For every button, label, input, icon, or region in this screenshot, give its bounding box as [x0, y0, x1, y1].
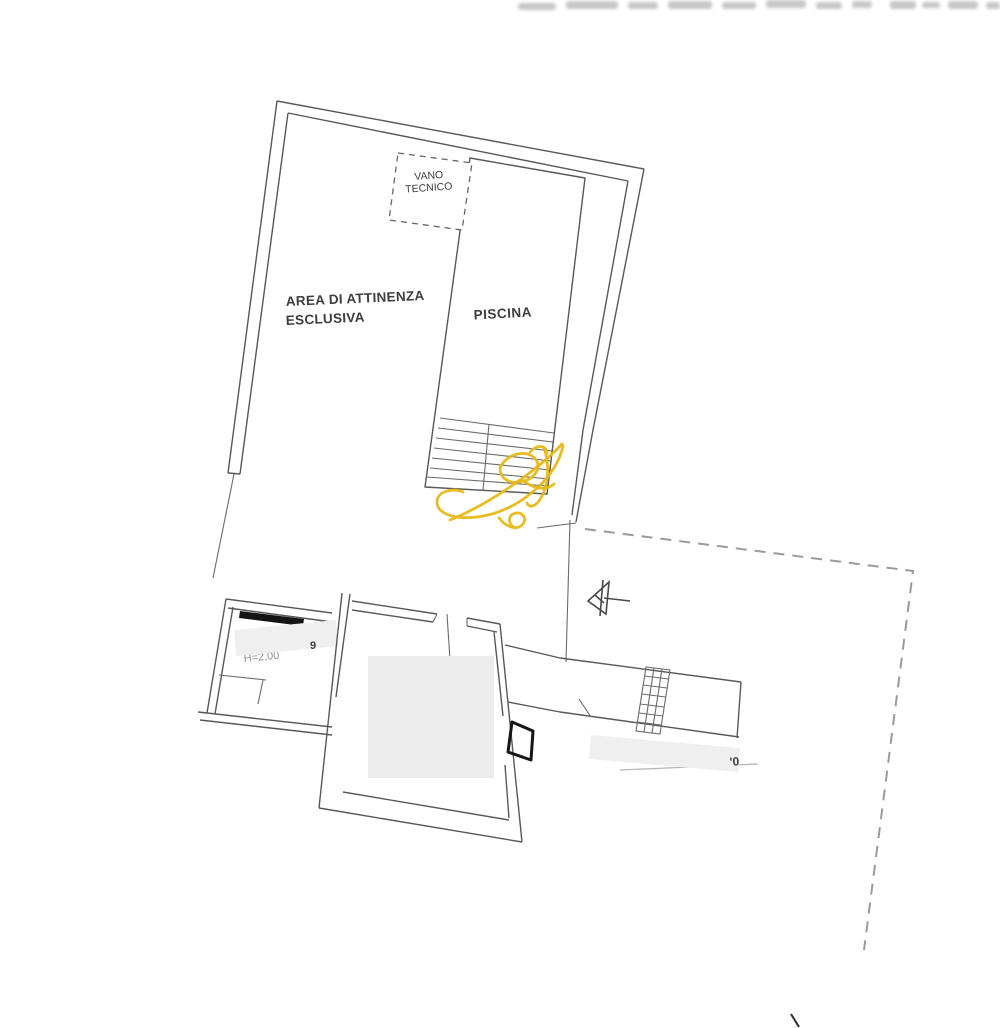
blroom-left-outer — [207, 599, 226, 713]
watermark-stroke-bottom-loop — [499, 513, 525, 528]
corridor-wing: '0 — [505, 645, 758, 772]
blroom-top-outer — [226, 599, 332, 613]
blroom-bottom-outer — [198, 712, 332, 727]
floor-plan-page: PISCINA VANO TECNICO AREA DI ATTINENZA E… — [0, 0, 1000, 1028]
croom-right-inner — [494, 632, 509, 818]
boundary-right-inner — [572, 181, 628, 515]
blroom-bottom-inner — [200, 720, 332, 735]
boundary-left-cap — [228, 473, 240, 474]
pool-steps — [427, 418, 554, 490]
corridor-redaction — [589, 735, 740, 772]
boundary-top-outer — [277, 101, 644, 169]
croom-top2-outer — [467, 618, 500, 624]
area-esclusiva-label: AREA DI ATTINENZA ESCLUSIVA — [285, 288, 424, 328]
entrance-arrow — [588, 580, 630, 616]
entrance-arrow-inner-tick — [595, 595, 604, 603]
floor-plan-drawing: PISCINA VANO TECNICO AREA DI ATTINENZA E… — [0, 0, 1000, 1028]
croom-redacted-area — [368, 656, 494, 778]
area-label-line2: ESCLUSIVA — [285, 310, 365, 328]
stray-mark — [791, 1014, 799, 1027]
croom-door-leaf — [447, 614, 450, 660]
croom-top2-inner — [467, 626, 497, 632]
room-number: 9 — [310, 640, 316, 652]
vano-tecnico-room: VANO TECNICO — [389, 153, 472, 230]
boundary-right-outer — [576, 169, 644, 522]
croom-left-inner — [336, 594, 350, 697]
blroom-left-inner — [215, 607, 233, 714]
corridor-top-wall — [505, 645, 741, 682]
corridor-bottom-wall — [508, 702, 739, 737]
covered-text-fragment: '0 — [729, 754, 740, 769]
boundary-left-inner — [240, 113, 288, 474]
area-label-line1: AREA DI ATTINENZA — [285, 288, 424, 309]
boundary-left-outer — [228, 101, 277, 473]
croom-bottom-outer — [319, 808, 522, 842]
croom-door-jamb-left — [433, 614, 437, 622]
corridor-end-cap — [737, 682, 741, 738]
cropped-header-text — [518, 0, 1000, 10]
watermark-stroke-sweep — [437, 446, 563, 518]
boundary-left-extension — [213, 474, 234, 578]
central-room — [319, 593, 533, 842]
boundary-right-extension — [566, 520, 570, 662]
bottom-left-room: H=2,00 9 — [198, 599, 338, 735]
blroom-partition — [219, 675, 266, 704]
height-note-redaction — [234, 620, 338, 656]
pool-label: PISCINA — [473, 304, 532, 322]
